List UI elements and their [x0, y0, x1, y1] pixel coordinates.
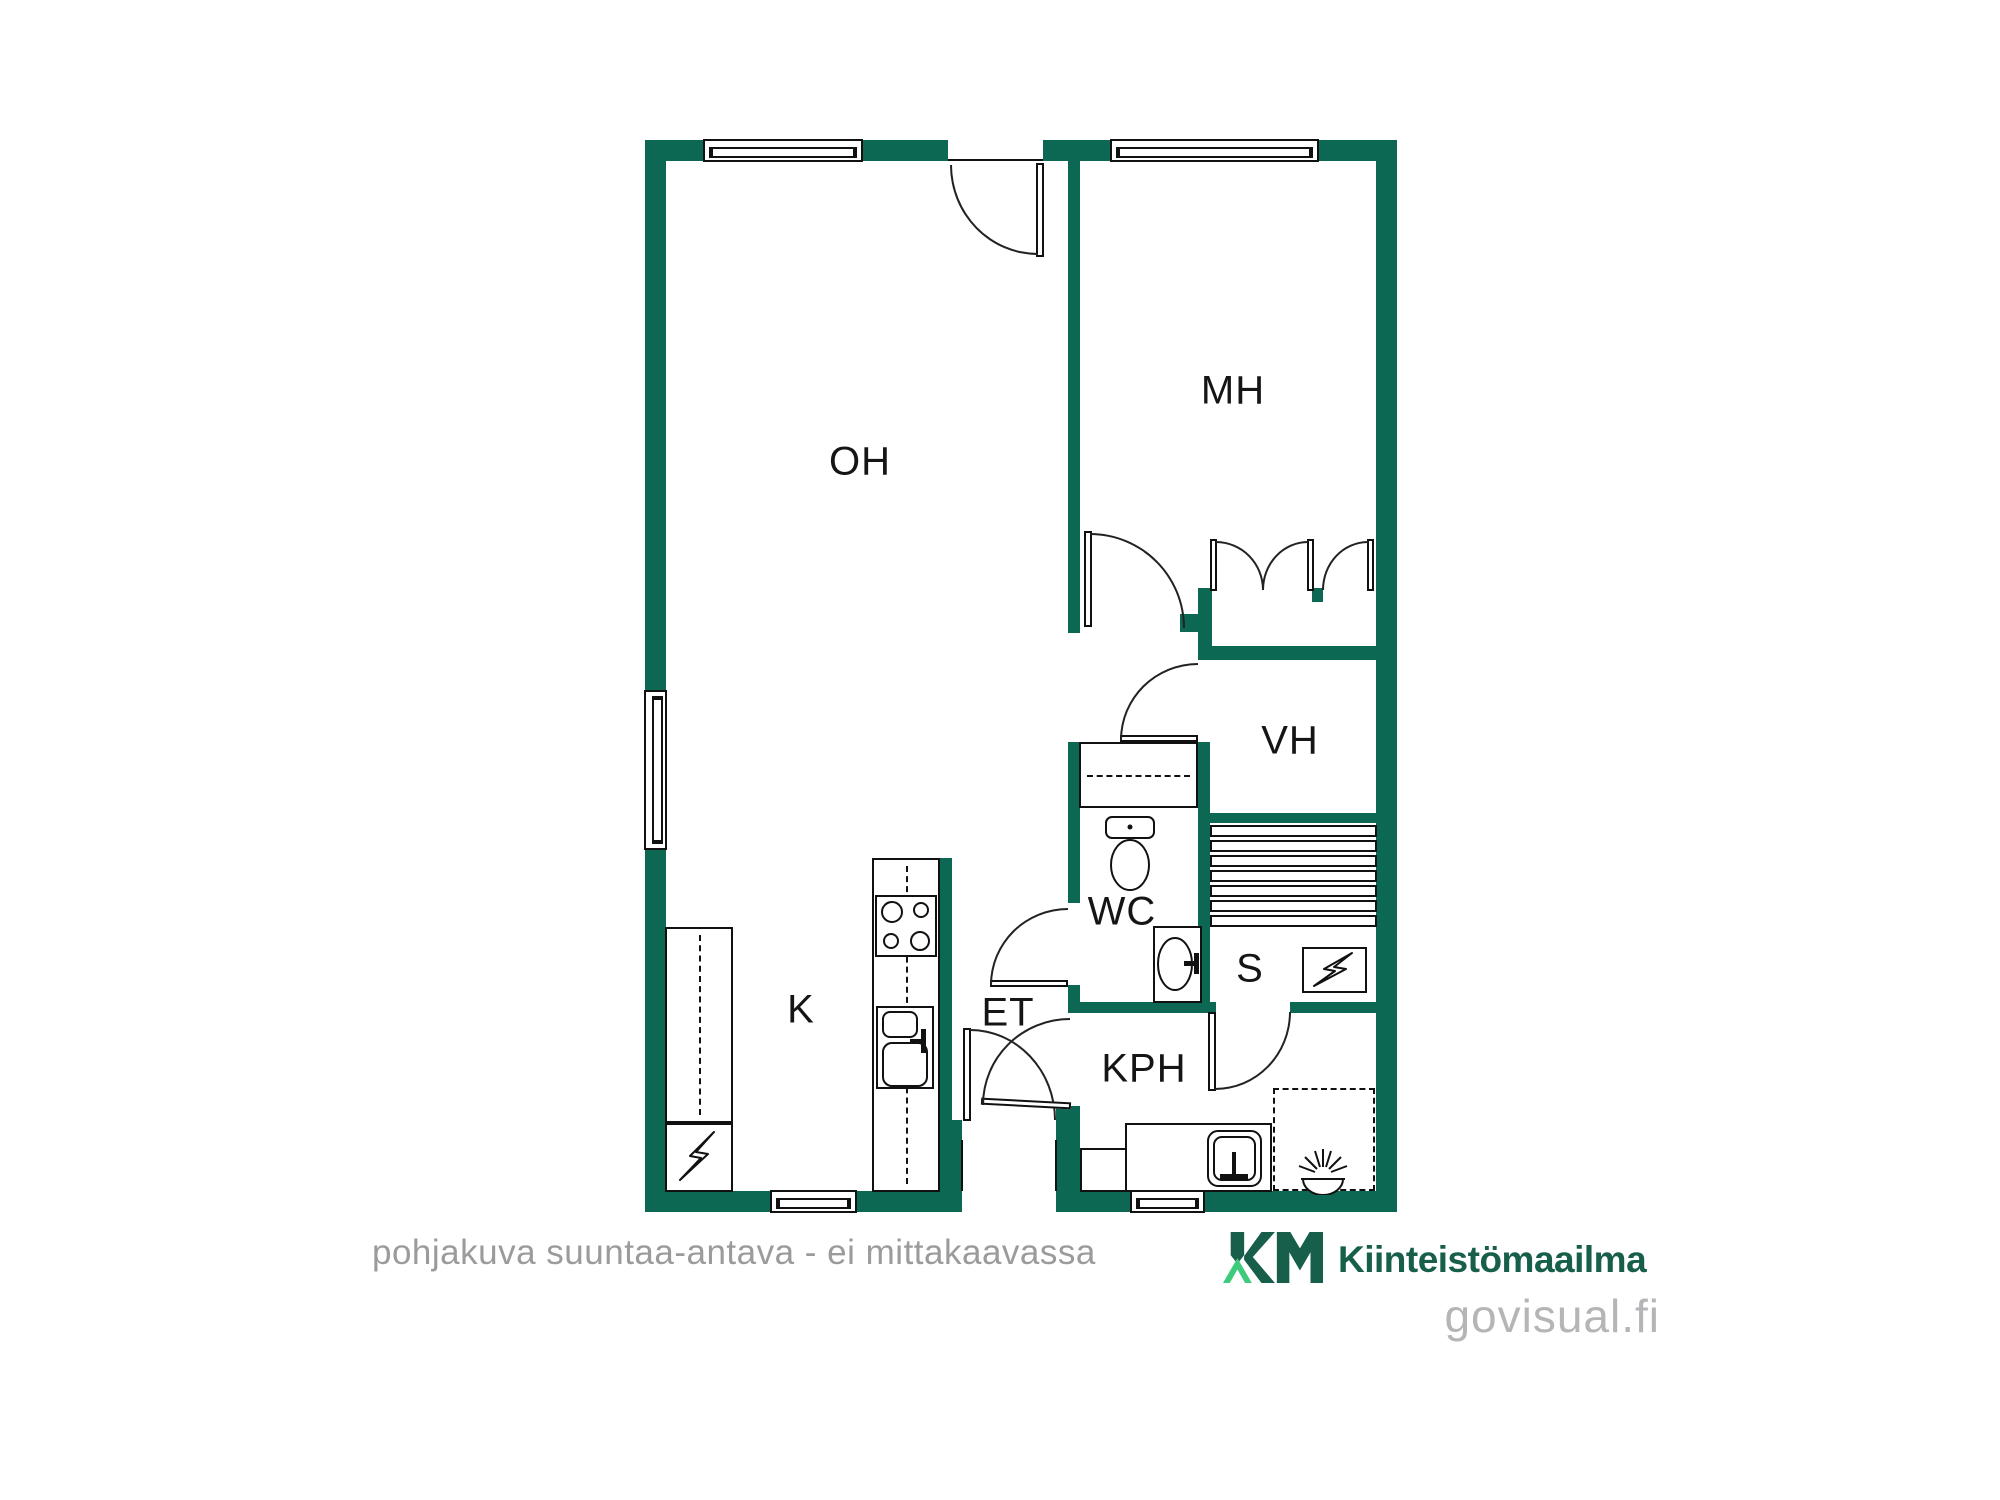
sauna-bench [1210, 825, 1377, 837]
mh-door-arc [1090, 533, 1185, 628]
sauna-bench [1210, 840, 1377, 852]
window-bottom-k [770, 1190, 857, 1213]
sauna-bench [1210, 915, 1377, 927]
wall-top-3 [1043, 140, 1110, 161]
window-top-right [1110, 139, 1319, 162]
sauna-bench [1210, 855, 1377, 867]
wc-sink-icon [1153, 926, 1203, 1004]
wall-left-1 [645, 140, 666, 690]
logo-site-text: govisual.fi [1360, 1289, 1660, 1343]
sauna-lightning-icon [1308, 951, 1361, 989]
room-label-oh: OH [829, 440, 891, 485]
window-bottom-kph [1130, 1190, 1205, 1213]
entry-jamb-right [1055, 1140, 1057, 1191]
closet-door-arc-1 [1216, 541, 1264, 590]
shower-icon [1288, 1145, 1358, 1195]
room-label-wc: WC [1088, 890, 1157, 935]
vh-door-arc [1120, 663, 1198, 740]
wall-right [1376, 140, 1397, 1212]
sauna-bench [1210, 885, 1377, 897]
room-label-mh: MH [1201, 369, 1265, 414]
wall-k-et-base [940, 1120, 962, 1191]
window-left [644, 690, 667, 850]
closet-door-arc-2 [1262, 541, 1308, 590]
closet-door-leaf-2 [1307, 539, 1314, 591]
top-door-arc [950, 165, 1038, 255]
kitchen-sink-icon [876, 1006, 934, 1090]
room-label-vh: VH [1261, 719, 1319, 764]
wall-sauna-bottom [1290, 1002, 1397, 1013]
cabinet-dash [699, 935, 701, 1115]
kitchen-lightning-icon [672, 1128, 726, 1186]
logo-company-name: Kiinteistömaailma [1338, 1239, 1646, 1281]
room-label-et: ET [981, 991, 1034, 1036]
wall-k-et [940, 858, 952, 1120]
wall-mh-bottom [1208, 646, 1397, 660]
top-door-threshold [948, 159, 1043, 161]
wall-bottom-1 [645, 1191, 770, 1212]
wall-oh-mh-divider [1068, 161, 1080, 633]
wall-vh-bottom [1198, 813, 1397, 823]
sauna-door-arc [1215, 1012, 1291, 1090]
window-top-left [703, 139, 863, 162]
wall-bottom-3 [1056, 1191, 1130, 1212]
room-label-kph: KPH [1101, 1047, 1186, 1092]
hall-cabinet-dash [1087, 775, 1190, 777]
km-logo-icon [1223, 1231, 1323, 1284]
closet-door-arc-3 [1322, 541, 1368, 590]
entry-jamb-left [961, 1140, 963, 1191]
toilet-icon [1104, 815, 1157, 893]
wall-top-2 [863, 140, 948, 161]
room-label-s: S [1236, 947, 1264, 992]
disclaimer-text: pohjakuva suuntaa-antava - ei mittakaava… [372, 1233, 1096, 1273]
closet-door-leaf-3 [1367, 539, 1374, 591]
floorplan-canvas: OH MH VH WC S K ET KPH pohjakuva suuntaa… [0, 0, 2000, 1500]
room-label-k: K [787, 988, 815, 1033]
kph-counter-left [1080, 1148, 1127, 1192]
wc-door-arc [990, 908, 1068, 985]
kph-sink-icon [1207, 1130, 1262, 1187]
wall-left-2 [645, 850, 666, 1212]
sauna-bench [1210, 870, 1377, 882]
sauna-bench [1210, 900, 1377, 912]
hall-cabinet [1079, 742, 1198, 808]
wall-et-right-stub [1056, 1106, 1080, 1191]
wall-bottom-2 [857, 1191, 962, 1212]
stove-icon [875, 895, 937, 957]
kitchen-tall-cabinet [665, 927, 733, 1123]
